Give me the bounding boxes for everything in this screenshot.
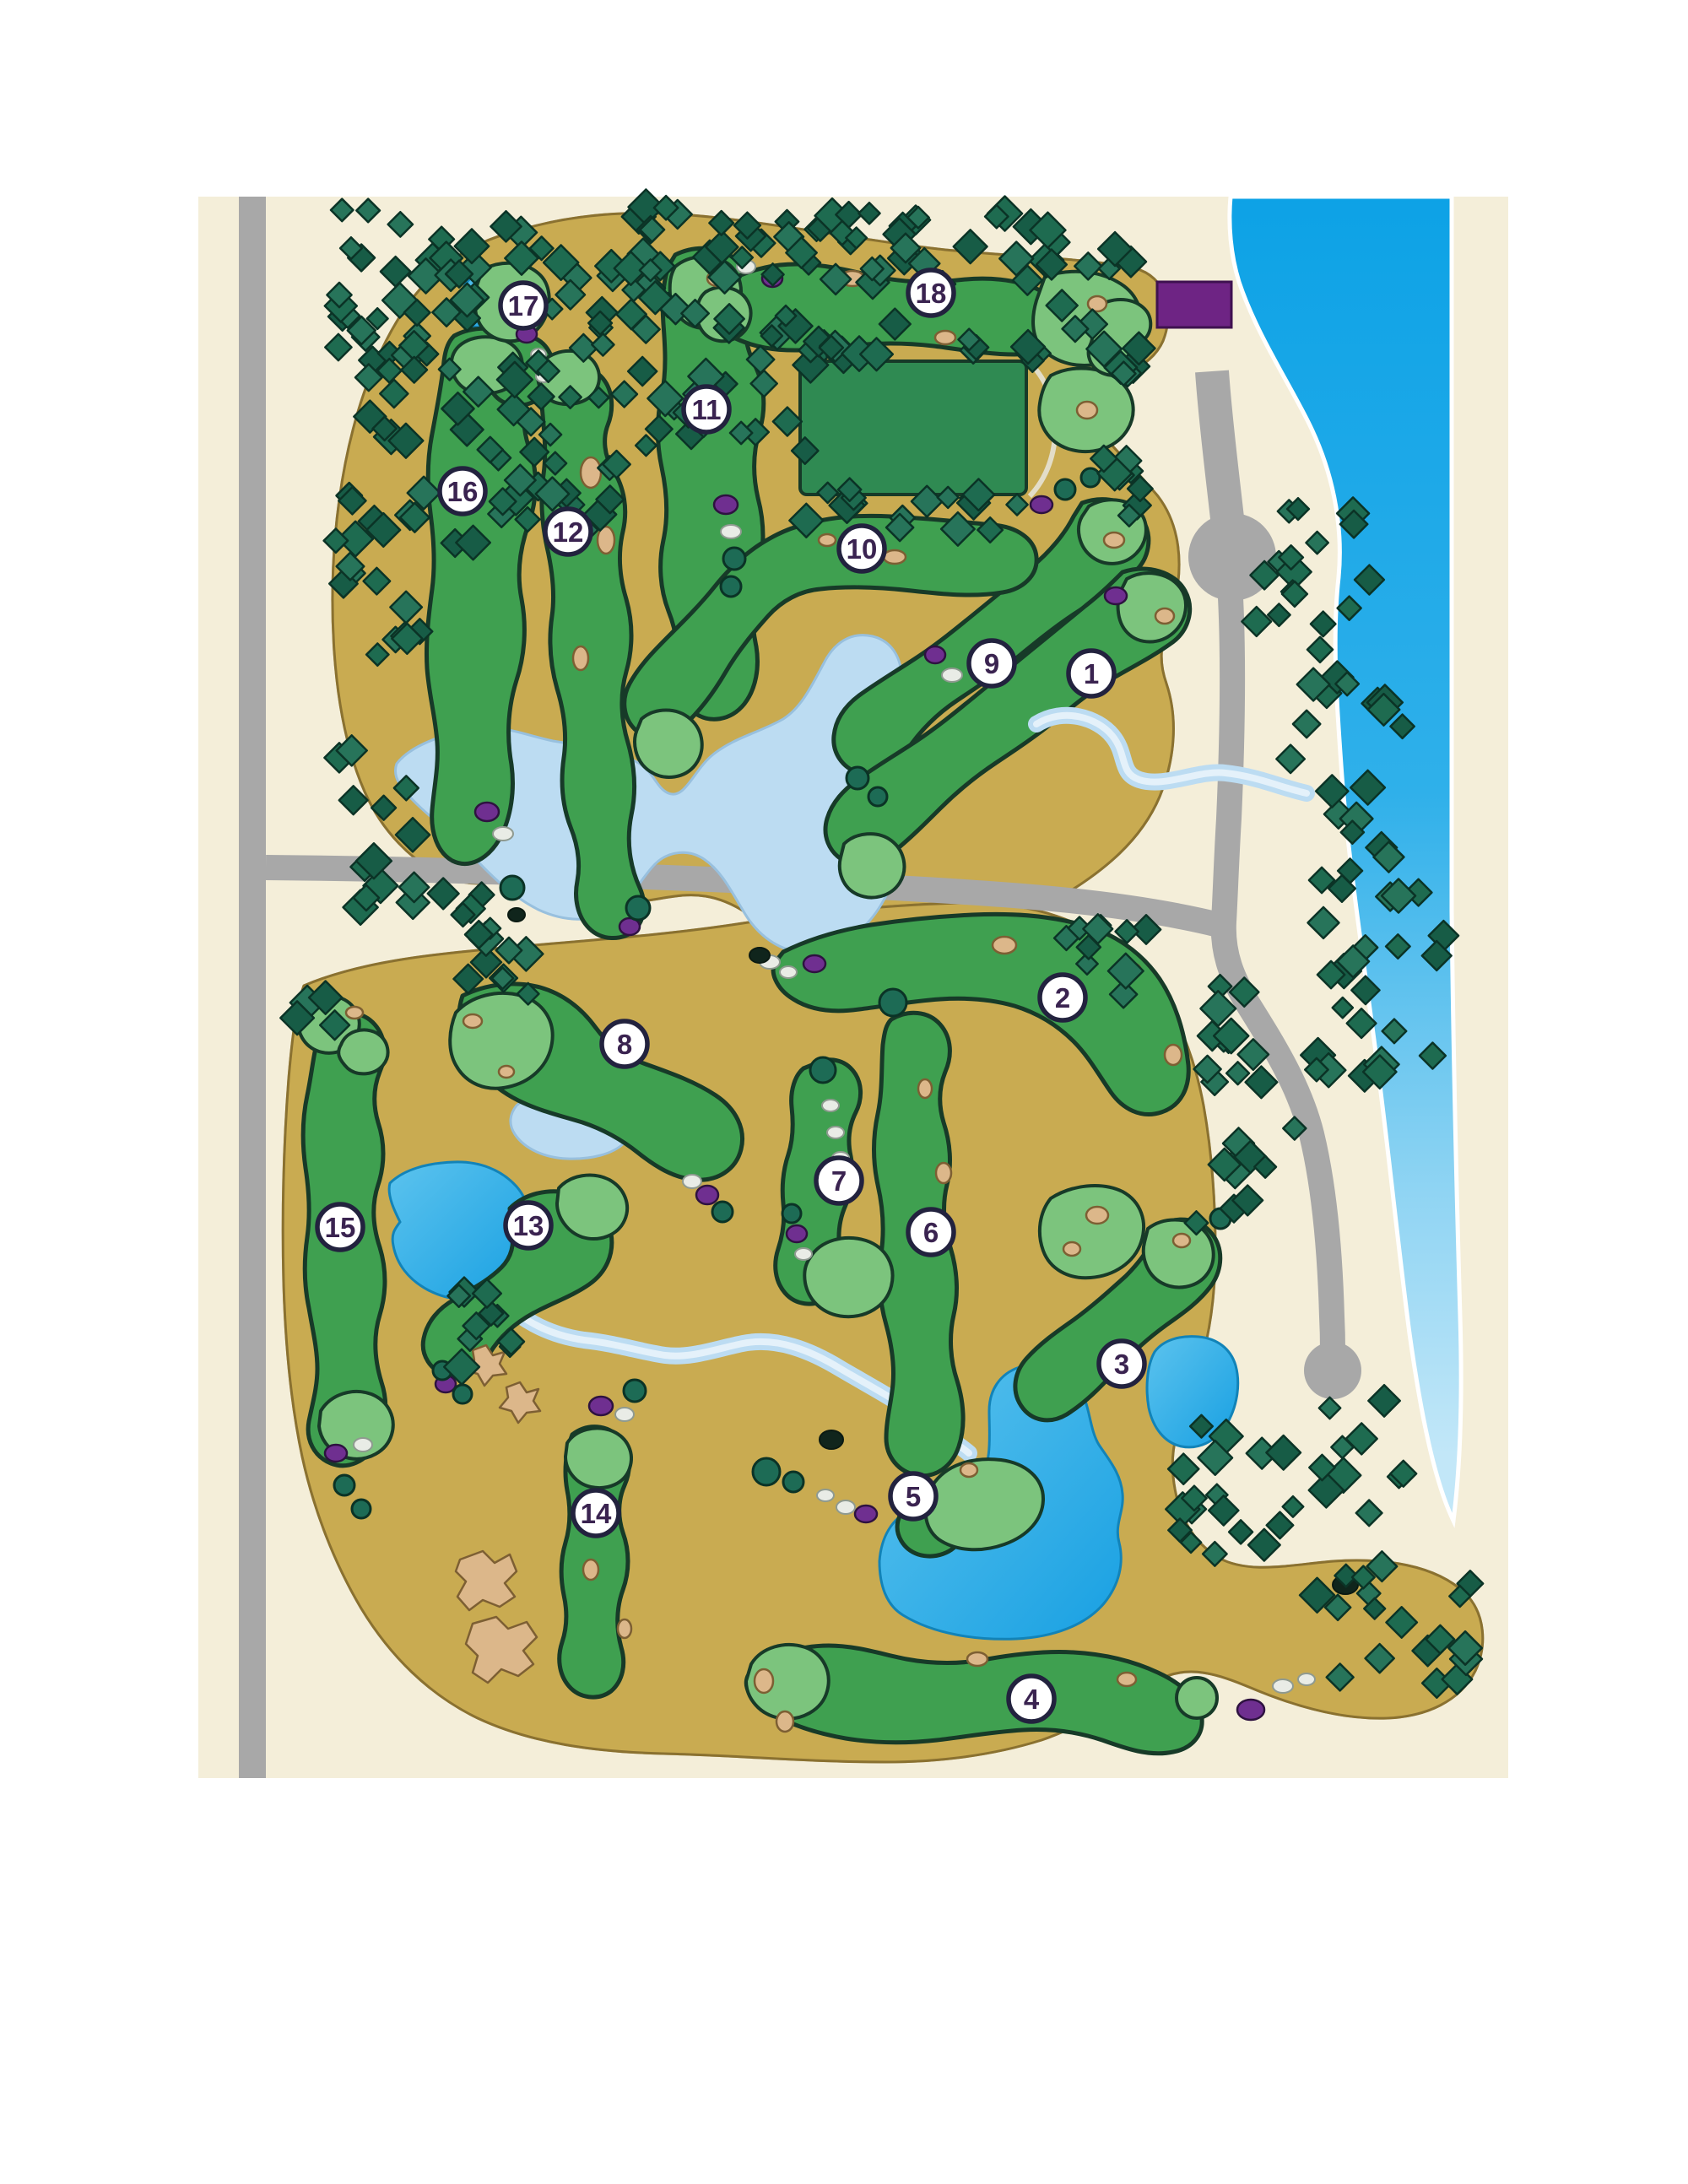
hole-number: 14: [581, 1498, 612, 1529]
hole-number: 17: [508, 290, 539, 322]
hole-number: 5: [906, 1481, 921, 1512]
hole-number: 10: [847, 533, 878, 565]
hole-marker-10: 10: [839, 526, 885, 571]
hole-marker-16: 16: [440, 468, 485, 514]
hole-marker-6: 6: [908, 1209, 954, 1255]
golf-course-map: 123456789101112131415161718: [0, 0, 1688, 2184]
hole-marker-8: 8: [602, 1021, 647, 1067]
hole-number: 2: [1055, 982, 1070, 1014]
hole-number: 16: [447, 476, 479, 507]
hole-number: 3: [1114, 1349, 1129, 1380]
hole-marker-14: 14: [573, 1490, 619, 1536]
hole-marker-7: 7: [816, 1158, 862, 1203]
hole-number: 7: [831, 1165, 847, 1197]
hole-number: 6: [923, 1217, 939, 1248]
hole-marker-18: 18: [908, 270, 954, 316]
hole-number: 9: [984, 648, 999, 679]
hole-marker-3: 3: [1099, 1341, 1144, 1387]
hole-number: 4: [1024, 1684, 1040, 1715]
hole-marker-1: 1: [1069, 651, 1114, 696]
hole-number: 13: [513, 1210, 544, 1241]
clubhouse: [1157, 282, 1231, 327]
hole-number: 15: [325, 1212, 356, 1243]
hole-marker-9: 9: [969, 641, 1014, 686]
cul-de-sac: [1304, 1342, 1361, 1399]
hole-marker-5: 5: [890, 1473, 936, 1519]
driving-range: [800, 361, 1055, 496]
hole-marker-17: 17: [500, 283, 546, 328]
hole-number: 12: [553, 516, 584, 548]
hole-number: 11: [692, 394, 722, 425]
hole-marker-11: 11: [684, 387, 729, 432]
hole-number: 1: [1084, 658, 1099, 689]
hole-number: 18: [916, 278, 947, 309]
hole-marker-15: 15: [317, 1204, 363, 1250]
hole-marker-12: 12: [545, 509, 591, 554]
hole-marker-2: 2: [1040, 975, 1085, 1020]
hole-marker-13: 13: [506, 1203, 551, 1248]
hole-marker-4: 4: [1009, 1676, 1054, 1722]
road-west: [239, 197, 266, 1778]
road-clubhouse: [1212, 371, 1227, 518]
page: { "page": { "background": "#ffffff" }, "…: [0, 0, 1688, 2184]
hole-number: 8: [617, 1029, 632, 1060]
